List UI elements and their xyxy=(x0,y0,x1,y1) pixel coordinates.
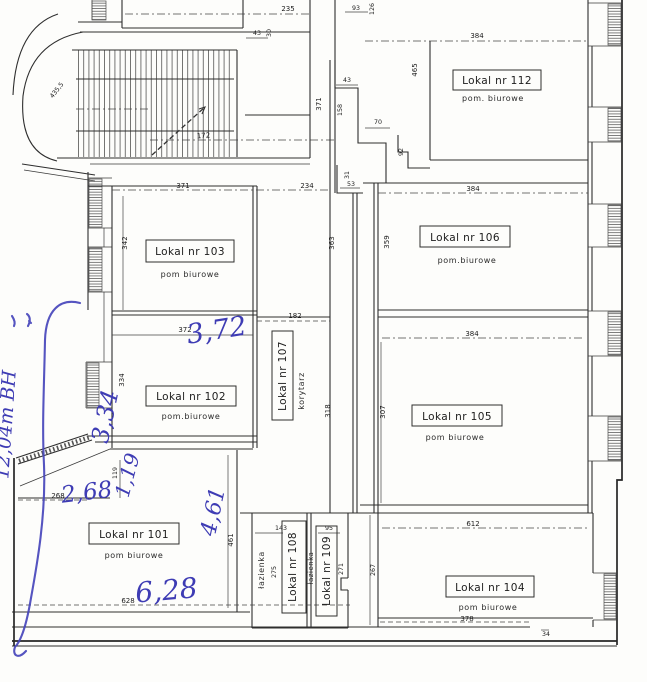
dim-label: 158 xyxy=(337,104,344,116)
handwritten-value-461: 4,61 xyxy=(196,485,231,539)
window-icon xyxy=(588,311,622,356)
staircase xyxy=(57,50,335,164)
dim-label: 435,5 xyxy=(49,81,66,100)
dim-label: 371 xyxy=(176,182,189,190)
room-label-101: Lokal nr 101 xyxy=(99,529,169,541)
dim-label: 43 xyxy=(253,30,261,37)
stair-treads xyxy=(76,50,234,157)
dim-label: 384 xyxy=(470,32,484,40)
dim-label: 271 xyxy=(338,563,345,575)
scanned-floor-plan-page: 235 43 30 93 126 43 158 70 92 465 384 37… xyxy=(0,0,647,682)
room-label-106: Lokal nr 106 xyxy=(430,232,500,244)
dim-label: 334 xyxy=(118,373,126,387)
room-label-108: Lokal nr 108 xyxy=(287,532,299,602)
room-label-112: Lokal nr 112 xyxy=(462,75,532,87)
window-icon xyxy=(593,573,617,620)
room-label-104: Lokal nr 104 xyxy=(455,582,525,594)
window-icon xyxy=(88,247,112,292)
dim-label: 384 xyxy=(465,330,479,338)
dim-label: 342 xyxy=(121,236,129,249)
dim-label: 93 xyxy=(352,5,360,12)
room-label-105: Lokal nr 105 xyxy=(422,411,492,423)
room-label-102: Lokal nr 102 xyxy=(156,391,226,403)
dim-label: 234 xyxy=(300,182,314,190)
dim-label: 318 xyxy=(324,404,332,417)
dim-label: 275 xyxy=(271,566,278,578)
left-facade-windows xyxy=(86,178,112,408)
room-label-107: Lokal nr 107 xyxy=(277,341,289,411)
window-icon xyxy=(92,1,106,20)
dim-label: 31 xyxy=(344,171,351,179)
handwritten-value-119: 1,19 xyxy=(110,450,145,499)
dim-label: 359 xyxy=(383,235,391,248)
dim-label: 384 xyxy=(466,185,480,193)
handwritten-value-372: 3,72 xyxy=(185,311,249,351)
handwritten-bracket-curve xyxy=(14,302,80,656)
dim-label: 182 xyxy=(288,312,301,320)
dim-label: 235 xyxy=(281,5,294,13)
window-icon xyxy=(588,416,622,461)
handwritten-tick xyxy=(12,316,15,326)
room-sublabel-107: korytarz xyxy=(297,372,306,410)
dim-label: 363 xyxy=(328,236,336,249)
dim-label: 70 xyxy=(374,119,382,126)
dim-label: 612 xyxy=(466,520,479,528)
window-icon xyxy=(588,3,622,46)
dim-label: 34 xyxy=(542,631,550,638)
window-icon xyxy=(588,204,622,247)
room-sublabel-109: łazienka xyxy=(307,552,315,585)
dim-label: 92 xyxy=(398,148,405,156)
room-sublabel-108: łazienka xyxy=(257,551,266,589)
dim-label: 267 xyxy=(370,564,377,576)
room-sublabel-105: pom biurowe xyxy=(426,433,485,442)
dim-label: 53 xyxy=(347,181,355,188)
dim-label: 43 xyxy=(343,77,351,84)
handwritten-side-note: 12,04m BH xyxy=(0,369,21,480)
floor-plan-canvas: 235 43 30 93 126 43 158 70 92 465 384 37… xyxy=(0,0,647,682)
room-sublabel-102: pom.biurowe xyxy=(162,412,221,421)
room-label-103: Lokal nr 103 xyxy=(155,246,225,258)
room-label-109: Lokal nr 109 xyxy=(321,536,333,606)
room-sublabel-112: pom. biurowe xyxy=(462,94,524,103)
dim-label: 371 xyxy=(315,97,323,110)
dim-label: 126 xyxy=(369,3,376,15)
dim-label: 307 xyxy=(379,405,387,418)
handwritten-tick xyxy=(27,314,31,326)
room-sublabel-103: pom biurowe xyxy=(161,270,220,279)
dim-label: 378 xyxy=(460,615,473,623)
window-icon xyxy=(588,107,622,142)
dim-label: 465 xyxy=(411,63,419,76)
dim-label: 461 xyxy=(227,533,235,546)
room-sublabel-101: pom biurowe xyxy=(105,551,164,560)
room-sublabel-104: pom biurowe xyxy=(459,603,518,612)
room-sublabel-106: pom.biurowe xyxy=(438,256,497,265)
dim-label: 30 xyxy=(266,29,273,37)
handwritten-value-628: 6,28 xyxy=(134,571,199,609)
handwritten-value-268: 2,68 xyxy=(59,477,114,509)
dim-label: 143 xyxy=(275,525,287,532)
dim-label: 628 xyxy=(121,597,134,605)
dim-label: 172 xyxy=(197,131,211,140)
